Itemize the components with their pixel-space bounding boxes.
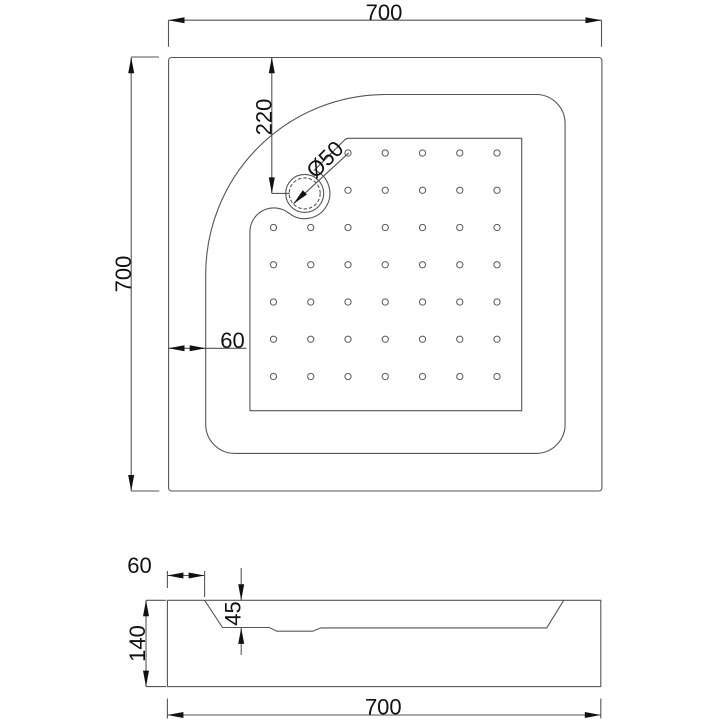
svg-text:45: 45 — [221, 601, 246, 625]
svg-text:140: 140 — [125, 625, 150, 662]
svg-text:220: 220 — [252, 99, 277, 136]
svg-text:60: 60 — [127, 553, 151, 578]
svg-text:700: 700 — [365, 694, 402, 719]
svg-text:60: 60 — [220, 328, 244, 353]
svg-text:700: 700 — [111, 256, 136, 293]
svg-text:700: 700 — [366, 0, 403, 25]
